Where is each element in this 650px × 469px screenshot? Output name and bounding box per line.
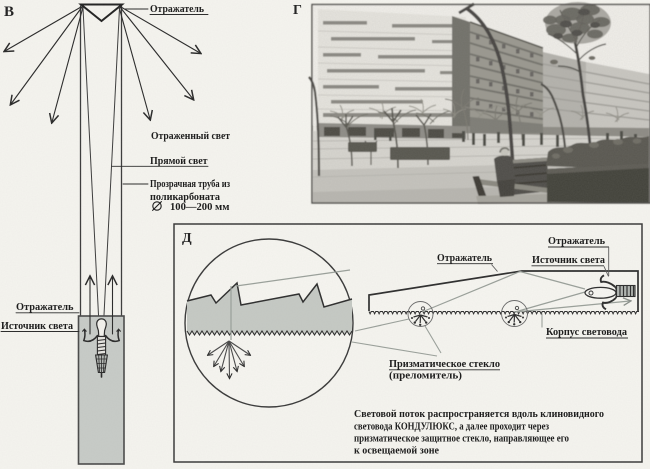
svg-text:Источник света: Источник света: [1, 321, 73, 332]
svg-text:световода КОНДУЛЮКС, а далее п: световода КОНДУЛЮКС, а далее проходит че…: [354, 422, 549, 433]
svg-text:Отражатель: Отражатель: [150, 4, 205, 15]
svg-text:Призматическое стекло: Призматическое стекло: [389, 359, 500, 370]
svg-text:к освещаемой зоне: к освещаемой зоне: [354, 446, 440, 457]
svg-text:Г: Г: [293, 3, 302, 18]
svg-text:Отражатель: Отражатель: [437, 253, 493, 264]
svg-text:Корпус световода: Корпус световода: [546, 327, 627, 338]
svg-text:Отражатель: Отражатель: [16, 302, 74, 313]
svg-text:Д: Д: [182, 231, 192, 246]
svg-text:100—200 мм: 100—200 мм: [170, 202, 230, 213]
svg-text:Прозрачная труба из: Прозрачная труба из: [150, 179, 230, 190]
svg-text:Источник света: Источник света: [532, 255, 605, 266]
svg-text:(преломитель): (преломитель): [389, 371, 462, 382]
svg-text:Отражатель: Отражатель: [548, 236, 606, 247]
svg-text:Отраженный свет: Отраженный свет: [151, 131, 230, 142]
svg-text:Прямой свет: Прямой свет: [150, 156, 208, 167]
svg-text:Световой поток распространяетс: Световой поток распространяется вдоль кл…: [354, 409, 604, 420]
svg-text:призматическое защитное стекло: призматическое защитное стекло, направля…: [354, 434, 569, 445]
svg-text:В: В: [4, 4, 14, 20]
